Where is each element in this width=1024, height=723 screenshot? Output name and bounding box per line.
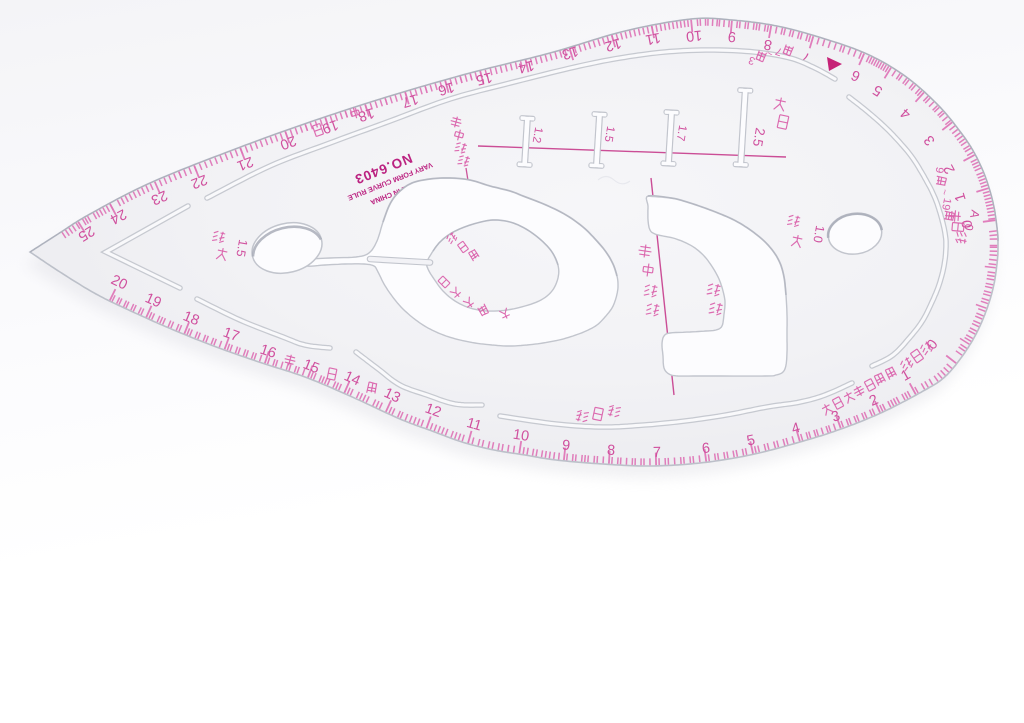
- svg-text:11: 11: [644, 29, 662, 48]
- svg-text:1.0: 1.0: [810, 224, 827, 244]
- svg-text:19: 19: [939, 197, 953, 211]
- svg-text:10: 10: [512, 427, 530, 445]
- svg-text:1.5: 1.5: [233, 238, 250, 258]
- svg-text:7: 7: [653, 445, 661, 461]
- svg-text:9: 9: [727, 28, 736, 45]
- svg-text:9: 9: [561, 437, 571, 454]
- svg-text:10: 10: [685, 26, 703, 44]
- svg-text:8: 8: [606, 443, 615, 460]
- svg-text:2.5: 2.5: [750, 127, 768, 148]
